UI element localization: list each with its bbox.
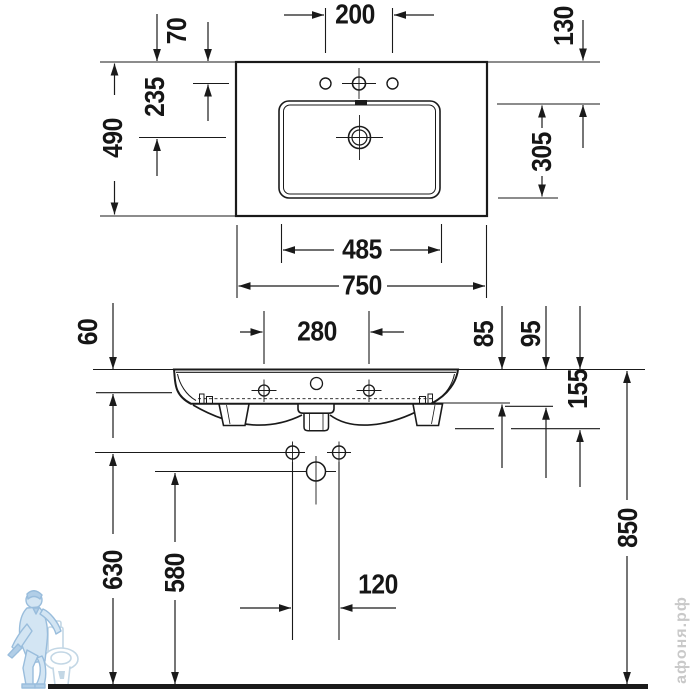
dim-label-top-to-mounting-holes: 60 bbox=[74, 319, 102, 346]
basin-foot-right bbox=[413, 404, 443, 426]
dim-label-floor-to-rim: 850 bbox=[614, 508, 642, 548]
drain-body bbox=[304, 413, 329, 431]
technical-drawing-canvas: 200 130 70 235 490 305 485 750 60 280 85… bbox=[0, 0, 700, 700]
dim-label-total-depth: 490 bbox=[99, 118, 127, 158]
drawing-linework bbox=[0, 0, 700, 700]
dim-label-basin-inner-depth: 305 bbox=[528, 132, 556, 172]
dim-label-floor-to-siphon-line: 580 bbox=[161, 553, 189, 593]
wall-fixing-holes bbox=[283, 442, 351, 505]
dim-label-fixing-hole-spacing: 120 bbox=[358, 570, 398, 598]
drain-flange bbox=[298, 404, 334, 413]
basin-outer-rect bbox=[236, 62, 487, 216]
basin-foot-left bbox=[219, 404, 249, 426]
basin-front-profile bbox=[174, 370, 458, 431]
dim-label-rear-to-drain-center: 235 bbox=[141, 77, 169, 117]
dim-label-floor-to-fixing-holes: 630 bbox=[99, 550, 127, 590]
dim-label-faucet-hole-spacing: 200 bbox=[335, 0, 375, 28]
overflow-slot bbox=[355, 100, 367, 105]
front-view-dimension-arrows bbox=[113, 303, 627, 684]
dim-label-top-to-side-bottom: 85 bbox=[470, 321, 498, 348]
watermark-logo bbox=[8, 591, 78, 688]
dim-label-total-width: 750 bbox=[342, 271, 382, 299]
dim-label-rear-to-faucet-holes: 70 bbox=[163, 18, 191, 45]
dim-label-top-to-underside: 95 bbox=[517, 321, 545, 348]
dim-label-top-to-drain-bottom: 155 bbox=[564, 369, 592, 409]
dim-label-mounting-hole-spacing: 280 bbox=[297, 317, 337, 345]
watermark-text: афоня.рф bbox=[673, 596, 691, 684]
dim-label-rear-edge-to-basin: 130 bbox=[550, 6, 578, 46]
front-view bbox=[48, 303, 648, 687]
dim-label-basin-inner-width: 485 bbox=[342, 235, 382, 263]
